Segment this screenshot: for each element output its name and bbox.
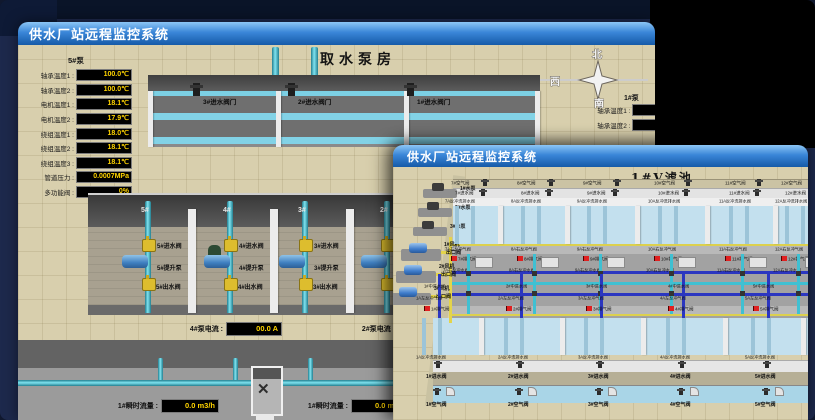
channel-divider (148, 91, 153, 147)
inlet-valve-label: 2#进水阀 (508, 375, 529, 381)
panel-label: 多功能阀 (26, 187, 74, 197)
channel-elbow (446, 387, 455, 396)
panel-row: 绕组温度218.1℃ (26, 141, 134, 156)
panel-value[interactable]: 100.0℃ (76, 84, 132, 96)
left-backwash-air-label: 5A左反冲气阀 (745, 296, 771, 301)
flow-readout-value[interactable]: 0.0 m3/h (161, 399, 219, 413)
outlet-valve-label: 3#出水阀 (313, 282, 338, 291)
left-backwash-air-label: 4A左反冲气阀 (660, 296, 686, 301)
vent-valve-label: 1#排气阀 (431, 306, 450, 312)
mid-inlet-valve-label: 2#中进水阀 (506, 284, 527, 289)
panel-label: 电机温度1 (26, 99, 74, 109)
panel-label: 绕组温度1 (26, 129, 74, 139)
panel-value[interactable]: 100.0℃ (76, 69, 132, 81)
compass-north: 北 (592, 48, 602, 61)
panel-value[interactable]: 18.1℃ (76, 157, 132, 169)
riser-pipe (272, 47, 279, 75)
vent-alarm-icon (517, 256, 523, 261)
flow-meter-rotor-icon: ✕ (257, 380, 270, 398)
background-top-band (0, 0, 660, 19)
bay-label: 4# (223, 207, 231, 214)
compass-west: 西 (550, 76, 560, 88)
background-black-area (650, 0, 815, 148)
scene-title-intake: 取水泵房 (320, 49, 396, 69)
inlet-valve[interactable] (613, 189, 617, 196)
current-readout-value[interactable]: 00.0 A (226, 322, 282, 336)
drain-pump[interactable] (427, 202, 439, 210)
left-backwash-air-label: 2A左反冲气阀 (498, 296, 524, 301)
air-valve-label: 9#空气阀 (583, 180, 602, 186)
drain-valve-label: 2A反冲洗排水阀 (498, 355, 528, 360)
gallery-walk (451, 246, 808, 254)
filter-lane (785, 206, 789, 244)
air-valve[interactable] (757, 179, 761, 186)
backwash-water-pipe (451, 271, 808, 274)
front-window: 供水厂站远程监控系统 1#V滤池 1#水泵2#水泵3#水泵1#风机出口阀2#风机… (393, 145, 808, 420)
vent-alarm-icon (725, 256, 731, 261)
air-valve-label: 2#空气阀 (508, 403, 529, 409)
inlet-valve-label: 8#进水阀 (521, 190, 540, 196)
gallery-valve[interactable] (796, 271, 801, 276)
desktop: 供水厂站远程监控系统 取水泵房 5#泵 轴承温度1100.0℃轴承温度2100.… (0, 0, 815, 420)
cell-separator (565, 206, 570, 244)
filter-lane (521, 206, 525, 244)
inlet-valve-label: 1#进水阀 (426, 375, 447, 381)
right-backwash-water-label: 9A右反冲水阀 (575, 268, 601, 273)
cell-separator (641, 318, 646, 355)
inlet-valve-label: 4#进水阀 (239, 241, 264, 250)
left-backwash-air-label: 1A左反冲气阀 (416, 296, 442, 301)
inlet-valve-label: 3#进水阀 (314, 241, 339, 250)
panel-label: 轴承温度1 (576, 105, 630, 115)
filter-lane (587, 206, 591, 244)
filter-lane (674, 206, 678, 244)
outlet-valve-label: 5#出水阀 (156, 282, 181, 291)
cell-separator (635, 206, 640, 244)
air-valve-label: 11#空气阀 (725, 180, 746, 186)
right-backwash-water-label: 7A右反冲水阀 (443, 268, 469, 273)
gallery-air-branch (467, 254, 470, 314)
air-valve-label: 5#空气阀 (755, 403, 776, 409)
current-readout-label: 2#泵电流 (340, 324, 395, 334)
air-valve-label: 4#空气阀 (670, 403, 691, 409)
blower[interactable] (404, 265, 422, 275)
right-backwash-air-label: 10A右反冲气阀 (648, 247, 676, 252)
vent-valve-label: 2#排气阀 (513, 306, 532, 312)
drain-valve[interactable] (680, 361, 684, 368)
air-valve-label: 10#空气阀 (654, 180, 675, 186)
air-valve-label: 12#空气阀 (781, 180, 802, 186)
drain-valve-label: 10A反冲洗排水阀 (648, 199, 680, 204)
panel-row: 管道压力0.0007MPa (26, 170, 134, 185)
pump1-panel-header: 1#泵 (624, 93, 655, 103)
filter-lane (584, 318, 588, 355)
drain-valve[interactable] (518, 361, 522, 368)
filter-lane (422, 318, 426, 355)
filter-lane (658, 206, 662, 244)
channel-elbow (775, 387, 784, 396)
vent-valve-label: 3#排气阀 (593, 306, 612, 312)
mid-inlet-valve-label: 1#中进水阀 (424, 284, 445, 289)
air-valve[interactable] (483, 179, 487, 186)
air-valve[interactable] (686, 179, 690, 186)
vent-alarm-icon (654, 256, 660, 261)
filter-lane (537, 206, 541, 244)
lift-pump[interactable] (279, 255, 305, 268)
filter-lane (729, 206, 733, 244)
intake-gate-valve[interactable] (407, 83, 414, 96)
channel-wall (148, 120, 540, 137)
inlet-valve[interactable] (224, 239, 238, 252)
right-backwash-air-label: 11A右反冲气阀 (719, 247, 747, 252)
intake-gate-valve[interactable] (288, 83, 295, 96)
inlet-valve[interactable] (142, 239, 156, 252)
lift-pump-label: 3#提升泵 (314, 263, 339, 272)
filter-lane (666, 318, 670, 355)
gallery-valve[interactable] (740, 271, 745, 276)
riser-pipe (311, 47, 318, 75)
filter-lane (520, 318, 524, 355)
hall-pillar (270, 209, 278, 313)
channel-water (148, 137, 540, 144)
gallery-air-branch (741, 254, 744, 314)
vent-alarm-icon (506, 306, 512, 311)
air-valve-label: 3#空气阀 (588, 403, 609, 409)
pump5-panel: 5#泵 轴承温度1100.0℃轴承温度2100.0℃电机温度118.1℃电机温度… (26, 55, 134, 199)
filter-lane (471, 206, 475, 244)
bay-label: 2# (380, 207, 388, 214)
drain-valve-label: 4A反冲洗排水阀 (660, 355, 690, 360)
inlet-valve-label: 4#进水阀 (670, 375, 691, 381)
cell-separator (705, 206, 710, 244)
lift-pump[interactable] (204, 255, 230, 268)
panel-value[interactable]: 18.1℃ (76, 142, 132, 154)
gallery-equipment-box (607, 257, 625, 268)
bay-label: 5# (141, 207, 149, 214)
panel-row: 轴承温度1100.0℃ (26, 68, 134, 83)
inlet-valve[interactable] (755, 189, 759, 196)
panel-row: 绕组温度118.0℃ (26, 126, 134, 141)
channel-divider (404, 91, 409, 147)
gallery-air-branch (797, 254, 800, 314)
gallery-equipment-box (749, 257, 767, 268)
gallery-valve[interactable] (466, 291, 471, 296)
channel-elbow (608, 387, 617, 396)
flow-meter-panel (253, 368, 281, 379)
vent-alarm-icon (753, 306, 759, 311)
blower[interactable] (399, 287, 417, 297)
panel-row: 绕组温度318.1℃ (26, 156, 134, 171)
lift-pump-label: 4#提升泵 (239, 263, 264, 272)
inlet-valve-label: 5#进水阀 (157, 241, 182, 250)
drain-valve-label: 5A反冲洗排水阀 (745, 355, 775, 360)
air-valve[interactable] (764, 388, 768, 395)
inlet-valve[interactable] (299, 239, 313, 252)
inlet-valve-label: 10#进水阀 (658, 190, 679, 196)
air-valve[interactable] (679, 388, 683, 395)
bottom-walkway (433, 372, 808, 385)
filter-cells-top (453, 206, 808, 244)
cell-separator (498, 206, 503, 244)
panel-value[interactable]: 17.9℃ (76, 113, 132, 125)
air-valve-label: 7#空气阀 (451, 180, 470, 186)
inlet-valve-label: 3#进水阀 (588, 375, 609, 381)
inlet-valve[interactable] (684, 189, 688, 196)
right-backwash-water-label: 8A右反冲水阀 (509, 268, 535, 273)
filter-lane (745, 206, 749, 244)
drain-valve-label: 11A反冲洗排水阀 (719, 199, 751, 204)
channel-divider (276, 91, 281, 147)
vent-alarm-icon (583, 256, 589, 261)
lift-pump[interactable] (361, 255, 387, 268)
left-backwash-air-label: 3A左反冲气阀 (578, 296, 604, 301)
air-valve[interactable] (549, 179, 553, 186)
right-backwash-air-label: 12A右反冲气阀 (775, 247, 803, 252)
inlet-valve[interactable] (547, 189, 551, 196)
gallery-air-branch (533, 254, 536, 314)
intake-gate-valve[interactable] (193, 83, 200, 96)
outlet-valve[interactable] (224, 278, 238, 291)
bottom-channel (433, 385, 808, 403)
panel-row: 电机温度217.9℃ (26, 112, 134, 127)
gallery-equipment-box (678, 257, 696, 268)
filter-lane (600, 318, 604, 355)
mid-inlet-valve-label: 4#中进水阀 (668, 284, 689, 289)
front-window-titlebar[interactable]: 供水厂站远程监控系统 (393, 145, 808, 168)
panel-value[interactable]: 18.0℃ (76, 128, 132, 140)
panel-value[interactable] (632, 104, 655, 116)
flow-meter-base (256, 414, 274, 420)
channel-elbow (528, 387, 537, 396)
inlet-valve-label: 7#进水阀 (455, 190, 474, 196)
flow-meter[interactable]: ✕ (251, 366, 283, 416)
gallery-valve[interactable] (532, 291, 537, 296)
panel-label: 绕组温度2 (26, 143, 74, 153)
panel-row: 电机温度118.1℃ (26, 97, 134, 112)
v-filter-scene: 1#V滤池 1#水泵2#水泵3#水泵1#风机出口阀2#风机出口阀3#风机出口阀7… (393, 167, 808, 420)
lift-pump-label: 5#提升泵 (157, 263, 182, 272)
vent-valve-label: 4#排气阀 (675, 306, 694, 312)
right-backwash-air-label: 7A右反冲气阀 (445, 247, 471, 252)
gallery-valve[interactable] (532, 271, 537, 276)
vent-valve-label: 5#排气阀 (760, 306, 779, 312)
drain-valve-label: 1A反冲洗排水阀 (416, 355, 446, 360)
hall-pillar (346, 209, 354, 313)
drain-valve[interactable] (436, 361, 440, 368)
intake-valve-label: 1#进水阀门 (417, 96, 450, 106)
pump5-panel-header: 5#泵 (68, 55, 134, 66)
outlet-valve[interactable] (142, 278, 156, 291)
cell-separator (723, 318, 728, 355)
air-valve[interactable] (615, 179, 619, 186)
drain-valve-label: 7A反冲洗排水阀 (445, 199, 475, 204)
hall-pillar (188, 209, 196, 313)
mid-inlet-valve-label: 3#中进水阀 (586, 284, 607, 289)
mid-inlet-valve-label: 5#中进水阀 (753, 284, 774, 289)
gallery-valve[interactable] (466, 271, 471, 276)
gallery-equipment-box (541, 257, 559, 268)
intake-valve-label: 3#进水阀门 (203, 96, 236, 106)
cell-separator (479, 318, 484, 355)
filter-lane (801, 206, 805, 244)
filter-lane (455, 206, 459, 244)
intake-channels: 3#进水阀门2#进水阀门1#进水阀门 (148, 75, 540, 147)
right-backwash-air-label: 9A右反冲气阀 (577, 247, 603, 252)
outlet-valve[interactable] (299, 278, 313, 291)
panel-label: 管道压力 (26, 172, 74, 182)
current-readout-label: 4#泵电流 (168, 324, 223, 334)
panel-label: 电机温度2 (26, 114, 74, 124)
filter-lane (682, 318, 686, 355)
back-window-title: 供水厂站远程监控系统 (29, 24, 169, 43)
panel-value[interactable]: 18.1℃ (76, 98, 132, 110)
panel-row: 轴承温度2100.0℃ (26, 83, 134, 98)
intake-wall (148, 75, 540, 91)
filter-lane (767, 318, 771, 355)
filter-lane (751, 318, 755, 355)
panel-value[interactable] (632, 119, 655, 131)
panel-label: 轴承温度1 (26, 70, 74, 80)
panel-label: 绕组温度3 (26, 158, 74, 168)
filter-lane (504, 318, 508, 355)
drain-valve-label: 9A反冲洗排水阀 (577, 199, 607, 204)
gallery-yellow-rail (451, 314, 808, 316)
filter-lane (438, 318, 442, 355)
vent-alarm-icon (668, 306, 674, 311)
vent-alarm-icon (586, 306, 592, 311)
flow-readout-label: 1#瞬时流量 (293, 401, 348, 411)
channel-elbow (690, 387, 699, 396)
drain-valve[interactable] (765, 361, 769, 368)
blower-outlet-valve-label: 出口阀 (441, 273, 456, 279)
air-valve-label: 1#空气阀 (426, 403, 447, 409)
inlet-valve-label: 5#进水阀 (755, 375, 776, 381)
lift-pump[interactable] (122, 255, 148, 268)
flow-readout-label: 1#瞬时流量 (103, 401, 158, 411)
air-valve[interactable] (597, 388, 601, 395)
cell-separator (773, 206, 778, 244)
top-drain-strip (453, 198, 808, 206)
outlet-valve-label: 4#出水阀 (238, 282, 263, 291)
blower[interactable] (409, 243, 427, 253)
cell-separator (560, 318, 565, 355)
air-valve-label: 8#空气阀 (517, 180, 536, 186)
air-valve[interactable] (517, 388, 521, 395)
intake-valve-label: 2#进水阀门 (298, 96, 331, 106)
gallery-equipment-box (475, 257, 493, 268)
right-backwash-air-label: 8A右反冲气阀 (511, 247, 537, 252)
vent-alarm-icon (451, 256, 457, 261)
filter-lane (603, 206, 607, 244)
gallery-valve[interactable] (796, 291, 801, 296)
drain-valve-label: 12A反冲洗排水阀 (775, 199, 807, 204)
panel-label: 轴承温度2 (576, 120, 630, 130)
gallery-equipment-box (805, 257, 808, 268)
channel-water (148, 113, 540, 120)
air-valve[interactable] (435, 388, 439, 395)
front-window-title: 供水厂站远程监控系统 (407, 148, 537, 165)
drain-pump[interactable] (432, 183, 444, 191)
pump1-panel: 1#泵 轴承温度1 轴承温度2 (576, 93, 655, 132)
inlet-valve-label: 12#进水阀 (785, 190, 806, 196)
panel-value[interactable]: 0.0007MPa (76, 171, 132, 183)
vent-alarm-icon (781, 256, 787, 261)
vent-alarm-icon (424, 306, 430, 311)
cell-separator (801, 318, 806, 355)
inlet-valve-label: 11#进水阀 (729, 190, 750, 196)
gallery-valve[interactable] (669, 271, 674, 276)
drain-pump[interactable] (422, 221, 434, 229)
bay-label: 3# (298, 207, 306, 214)
back-window-titlebar[interactable]: 供水厂站远程监控系统 (18, 22, 655, 46)
drain-valve-label: 3A反冲洗排水阀 (578, 355, 608, 360)
drain-valve[interactable] (598, 361, 602, 368)
panel-label: 轴承温度2 (26, 85, 74, 95)
inlet-valve[interactable] (481, 189, 485, 196)
drain-valve-label: 8A反冲洗排水阀 (511, 199, 541, 204)
inlet-valve-label: 9#进水阀 (587, 190, 606, 196)
